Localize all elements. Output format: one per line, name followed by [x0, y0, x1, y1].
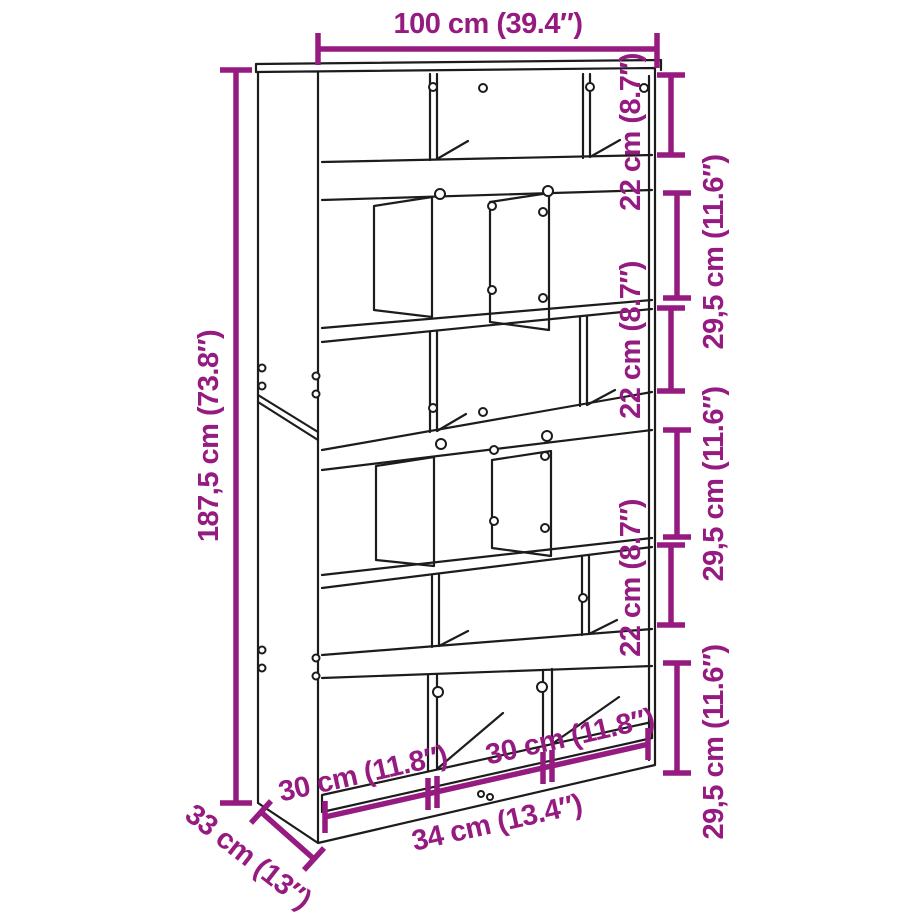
dim-label-compartment-height-2: 22 cm (8.7″) [615, 261, 647, 419]
dim-label-row-height-3: 29,5 cm (11.6″) [698, 644, 730, 839]
diagram-canvas: 100 cm (39.4″) 187,5 cm (73.8″) 22 cm (8… [0, 0, 920, 920]
dim-label-row-height-1: 29,5 cm (11.6″) [698, 154, 730, 349]
dim-label-row-height-2: 29,5 cm (11.6″) [698, 386, 730, 581]
dim-label-compartment-height-1: 22 cm (8.7″) [615, 53, 647, 211]
dim-label-depth: 33 cm (13″) [179, 798, 317, 916]
bookcase-dimension-diagram: 100 cm (39.4″) 187,5 cm (73.8″) 22 cm (8… [0, 0, 920, 920]
dim-label-compartment-width-left: 30 cm (11.8″) [276, 740, 451, 809]
dim-label-compartment-height-3: 22 cm (8.7″) [615, 499, 647, 657]
dim-line-row-heights [663, 193, 691, 773]
dim-label-total-height: 187,5 cm (73.8″) [193, 330, 225, 542]
bookcase-dividers-narrow [428, 74, 620, 771]
bookcase-dividers-box [374, 193, 551, 566]
dim-label-total-width: 100 cm (39.4″) [393, 8, 582, 40]
dim-line-compartment-heights [657, 75, 685, 625]
dimension-labels: 100 cm (39.4″) 187,5 cm (73.8″) 22 cm (8… [179, 8, 730, 916]
